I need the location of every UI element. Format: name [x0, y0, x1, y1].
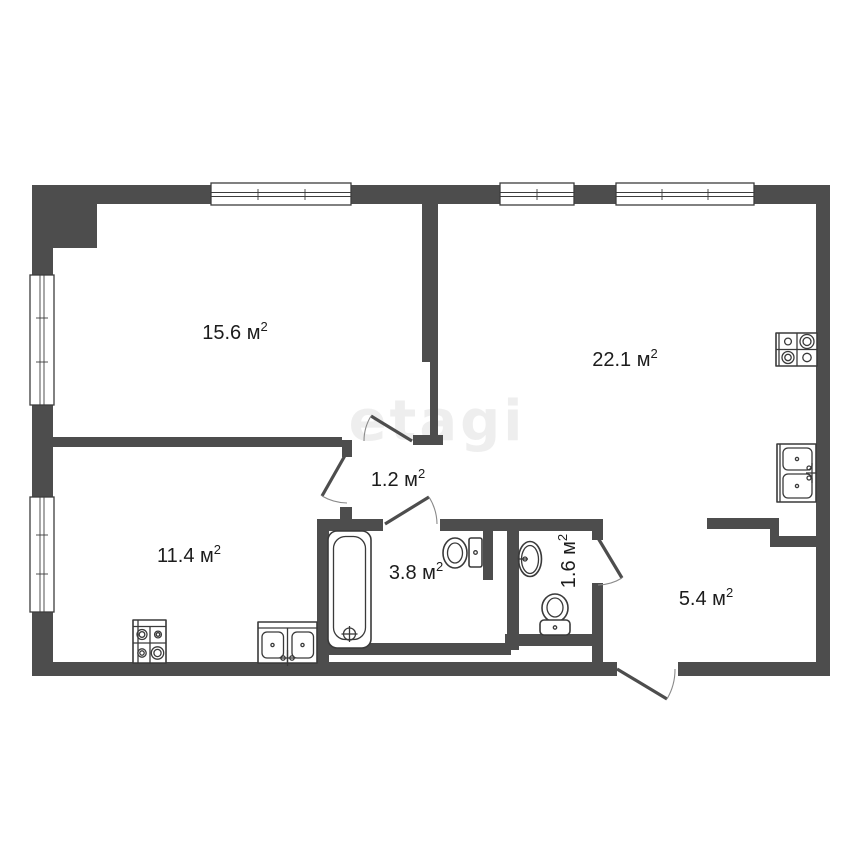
bathtub-icon — [328, 531, 371, 648]
room-label-1-6: 1.6 м2 — [555, 534, 580, 588]
room-label-15-6: 15.6 м2 — [202, 319, 267, 344]
room-label-1-2: 1.2 м2 — [371, 466, 425, 491]
floor-plan-page: etagi — [0, 0, 864, 864]
room-label-5-4: 5.4 м2 — [679, 585, 733, 610]
room-label-3-8: 3.8 м2 — [389, 559, 443, 584]
stove-icon — [776, 333, 817, 366]
room-label-11-4: 11.4 м2 — [157, 542, 221, 567]
floor-plan: etagi — [0, 0, 864, 864]
room-label-22-1: 22.1 м2 — [592, 346, 657, 371]
toilet-icon — [540, 594, 570, 635]
window-top-middle — [500, 183, 574, 205]
stove-icon — [133, 620, 166, 663]
sink-icon — [258, 622, 317, 666]
sink-icon — [777, 444, 817, 502]
window-left-upper — [30, 275, 54, 405]
window-left-lower — [30, 497, 54, 612]
toilet-icon — [443, 538, 482, 568]
washbasin-icon — [519, 542, 542, 577]
window-top-right — [616, 183, 754, 205]
window-top-left — [211, 183, 351, 205]
